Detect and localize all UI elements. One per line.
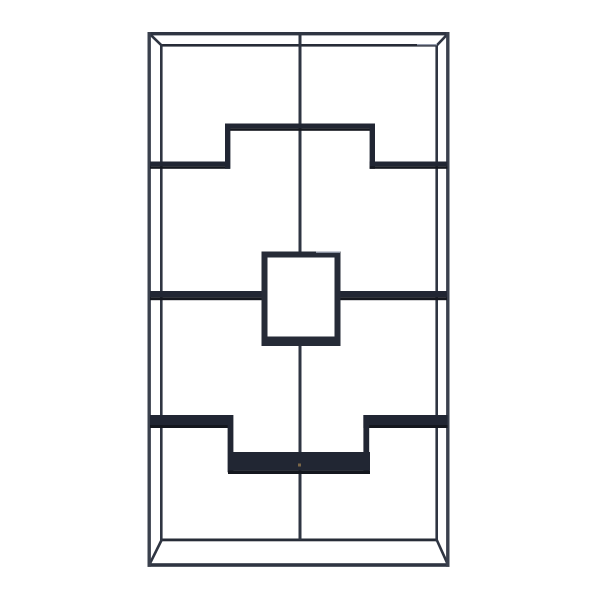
upper-right-shelf-top (370, 162, 448, 167)
upper-left-shelf-face (150, 166, 230, 169)
middle-left-shelf-face (150, 297, 263, 300)
lower-middle-shelf-top (228, 452, 370, 471)
bottom-front-rail (148, 563, 450, 567)
upper-middle-shelf-top (225, 124, 375, 129)
upper-left-step-bracket (225, 124, 230, 169)
middle-left-shelf-top (150, 291, 263, 297)
upper-right-shelf-face (370, 166, 448, 169)
etagere-product-image (0, 0, 600, 600)
lower-right-shelf-top (363, 415, 447, 425)
display-cube-opening (268, 258, 335, 337)
top-back-rail-highlight (417, 44, 437, 45)
middle-right-shelf-top (337, 291, 447, 297)
display-cube-top-highlight (316, 252, 340, 253)
middle-right-shelf-face (337, 297, 447, 300)
lower-left-shelf-top (150, 415, 233, 425)
upper-left-shelf-top (150, 162, 230, 167)
product-photo-canvas (0, 0, 600, 600)
hardware-screw-detail (298, 464, 301, 467)
lower-middle-shelf-face (228, 471, 370, 474)
lower-right-shelf-face (363, 425, 447, 428)
lower-left-shelf-face (150, 425, 233, 428)
bottom-left-corner-diagonal (149, 540, 161, 565)
upper-middle-shelf-face (225, 128, 375, 131)
